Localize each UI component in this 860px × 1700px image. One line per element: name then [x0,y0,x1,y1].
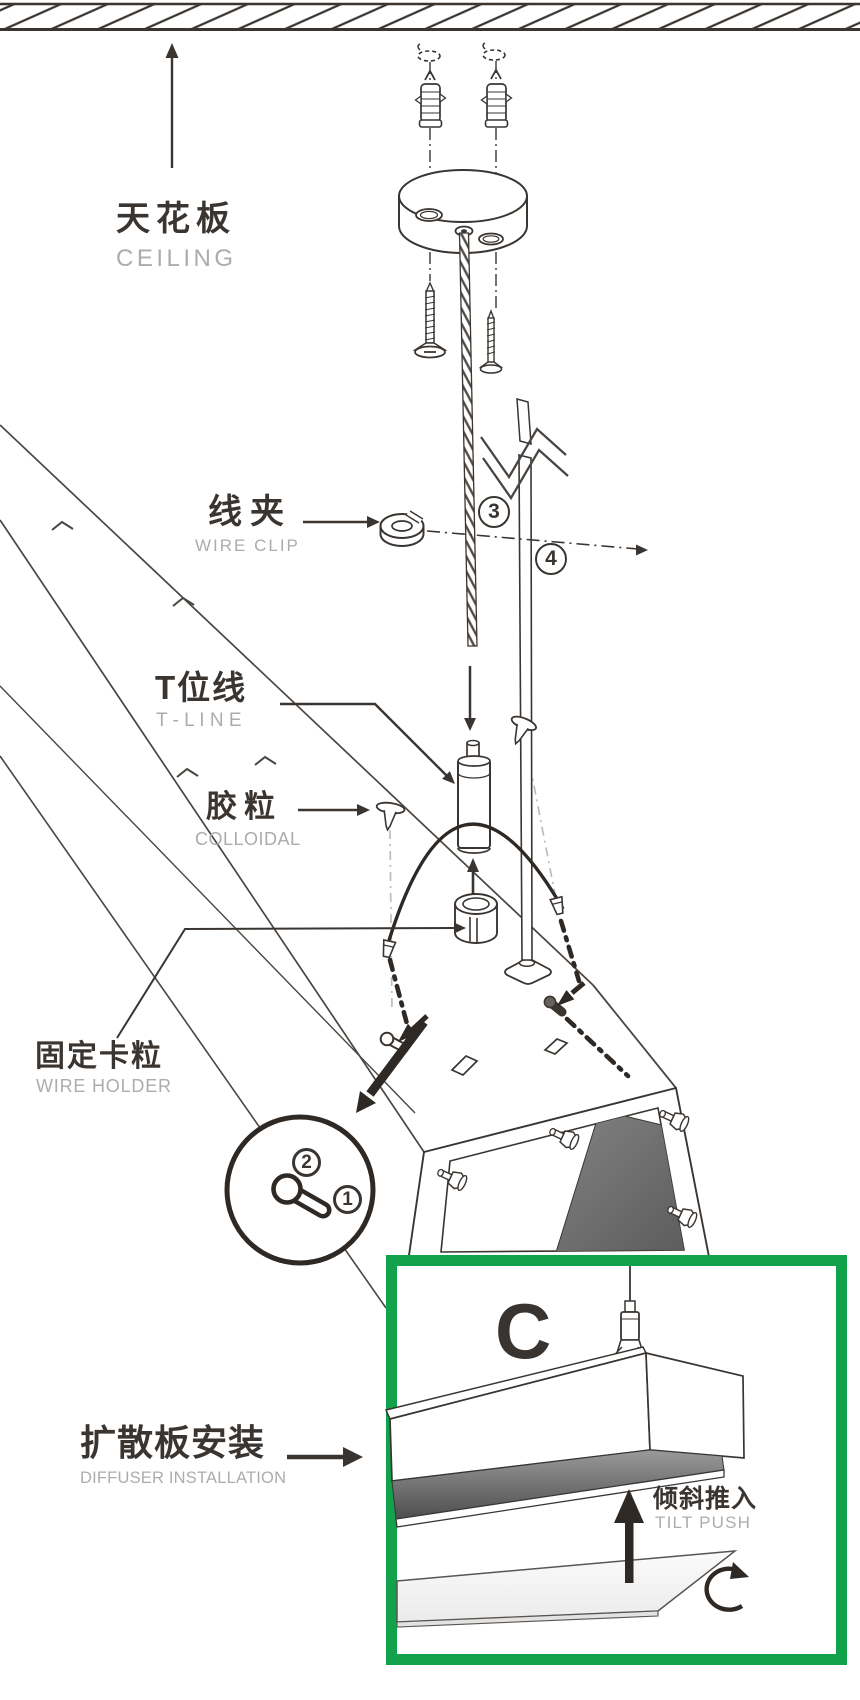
ceiling-label-en: CEILING [116,246,237,271]
pendant-light-installation-diagram: 天花板 CEILING 线夹 WIRE CLIP T位线 T - L I N E… [0,0,860,1700]
step-badge-3: 3 [478,496,510,528]
colloidal-label-en: COLLOIDAL [195,830,301,849]
wall-anchor-icon [482,84,512,127]
detail-badge-1: 1 [333,1185,362,1214]
screw-icon [415,283,445,358]
detail-panel-c [386,1261,842,1660]
suspension-rod [481,399,568,960]
drill-hole-icon [418,43,505,61]
wire-holder-label-zh: 固定卡粒 [35,1041,163,1073]
down-arrow-icon [464,666,476,731]
wire-holder-leader [117,923,466,1039]
ceiling-arrow-icon [166,43,179,168]
ceiling-hatch-band [0,4,860,30]
diffuser-arrow-icon [287,1447,363,1467]
colloidal-pin-icon [374,801,405,832]
wire-clip-label-zh: 线夹 [208,495,292,531]
tilt-push-label-zh: 倾斜推入 [653,1486,757,1512]
diffuser-label-en: DIFFUSER INSTALLATION [80,1470,286,1487]
tilt-push-label-en: TILT PUSH [655,1514,751,1532]
colloidal-arrow-icon [298,804,370,816]
t-line-label-zh: T位线 [155,671,247,706]
steel-cable [460,233,478,646]
swing-arc [380,824,628,1076]
detail-badge-2: 2 [292,1148,321,1177]
colloidal-label-zh: 胶粒 [206,791,282,824]
step-badge-4: 4 [535,543,567,575]
wire-holder-icon [455,894,497,943]
cone-plug-icon [550,897,566,915]
wire-holder-label-en: WIRE HOLDER [36,1077,172,1096]
wire-clip-label-en: WIRE CLIP [195,537,300,555]
wire-clip-arrow-icon [303,516,380,528]
ceiling-label-zh: 天花板 [116,202,236,238]
fixture-end-face [408,1088,712,1262]
cable-gripper-icon [458,741,490,854]
panel-c-label: C [495,1286,551,1377]
t-line-label-en: T - L I N E [156,711,242,731]
cone-plug-icon [380,940,395,958]
wire-clip-icon [381,511,424,546]
screw-icon [481,311,502,373]
diffuser-label-zh: 扩散板安装 [80,1424,265,1462]
wall-anchor-icon [416,84,446,127]
